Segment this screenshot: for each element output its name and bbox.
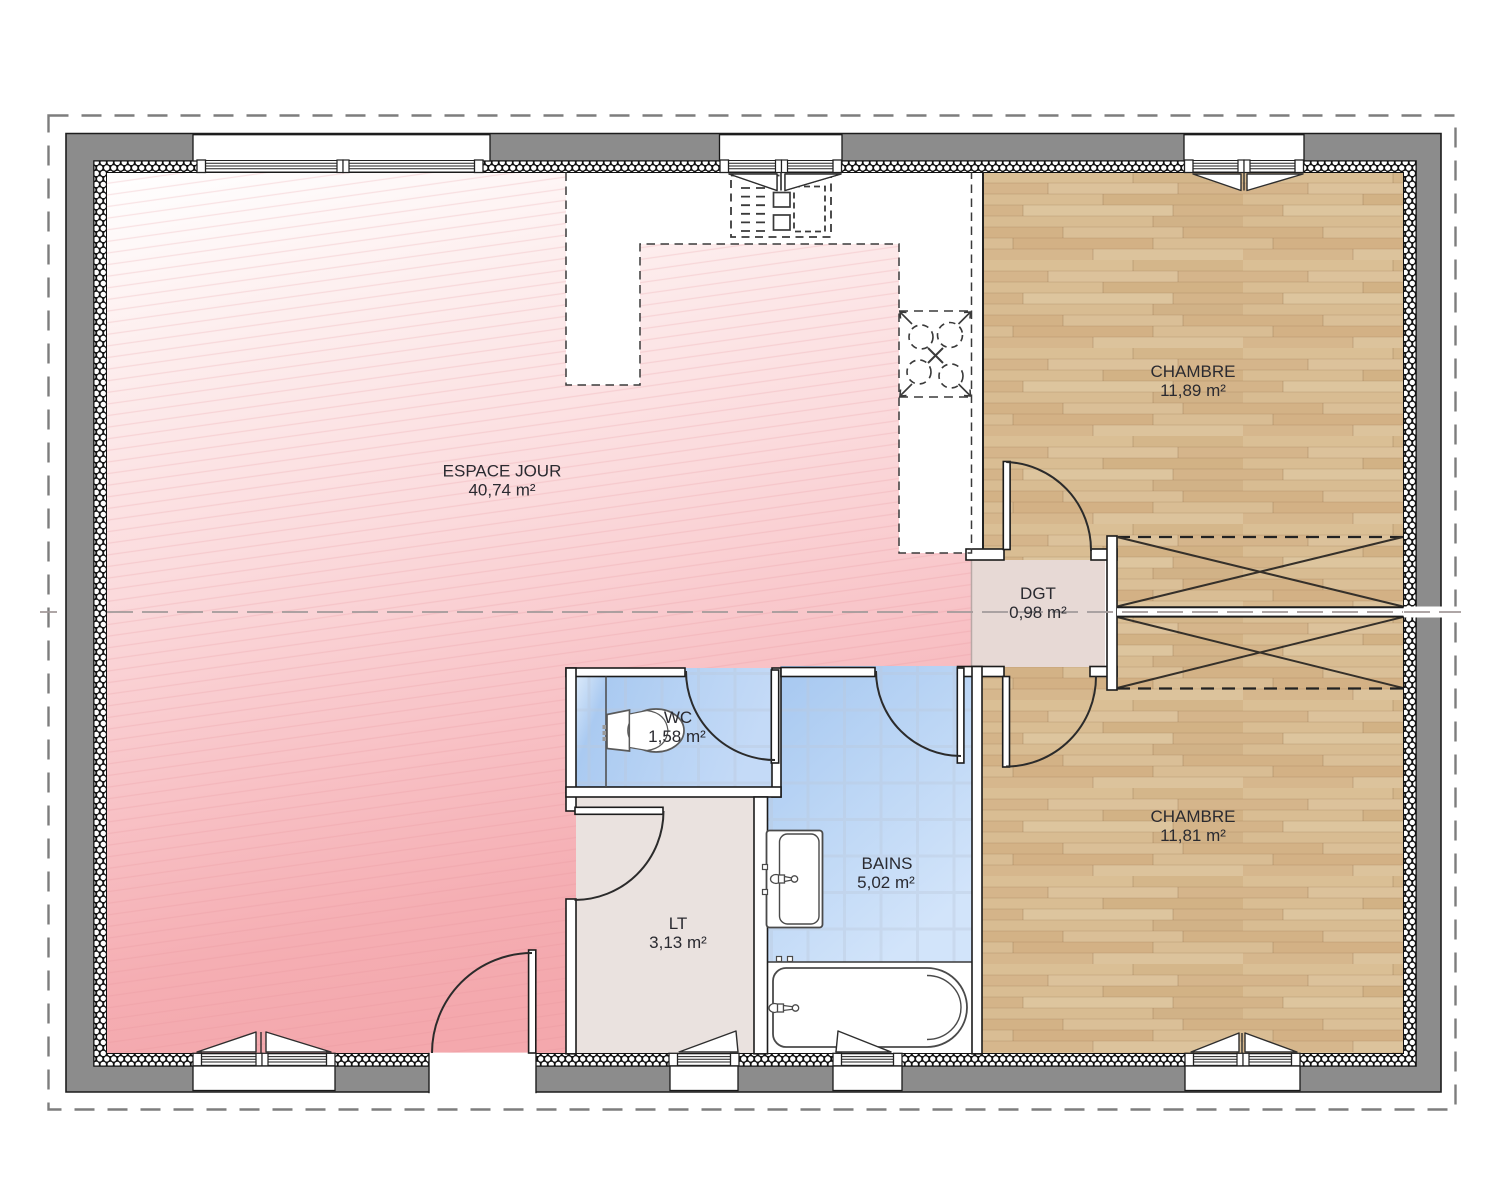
- svg-text:WC: WC: [664, 708, 692, 727]
- svg-text:LT: LT: [669, 914, 688, 933]
- svg-text:CHAMBRE: CHAMBRE: [1150, 807, 1235, 826]
- svg-text:11,89 m²: 11,89 m²: [1160, 381, 1226, 400]
- svg-text:ESPACE JOUR: ESPACE JOUR: [443, 462, 562, 481]
- svg-text:BAINS: BAINS: [861, 854, 912, 873]
- svg-text:DGT: DGT: [1020, 584, 1056, 603]
- svg-text:0,98 m²: 0,98 m²: [1009, 603, 1067, 622]
- svg-text:CHAMBRE: CHAMBRE: [1150, 362, 1235, 381]
- svg-text:11,81 m²: 11,81 m²: [1160, 826, 1226, 845]
- svg-text:40,74 m²: 40,74 m²: [468, 481, 535, 500]
- svg-text:5,02 m²: 5,02 m²: [857, 873, 915, 892]
- svg-text:3,13 m²: 3,13 m²: [649, 933, 707, 952]
- svg-text:1,58 m²: 1,58 m²: [648, 727, 706, 746]
